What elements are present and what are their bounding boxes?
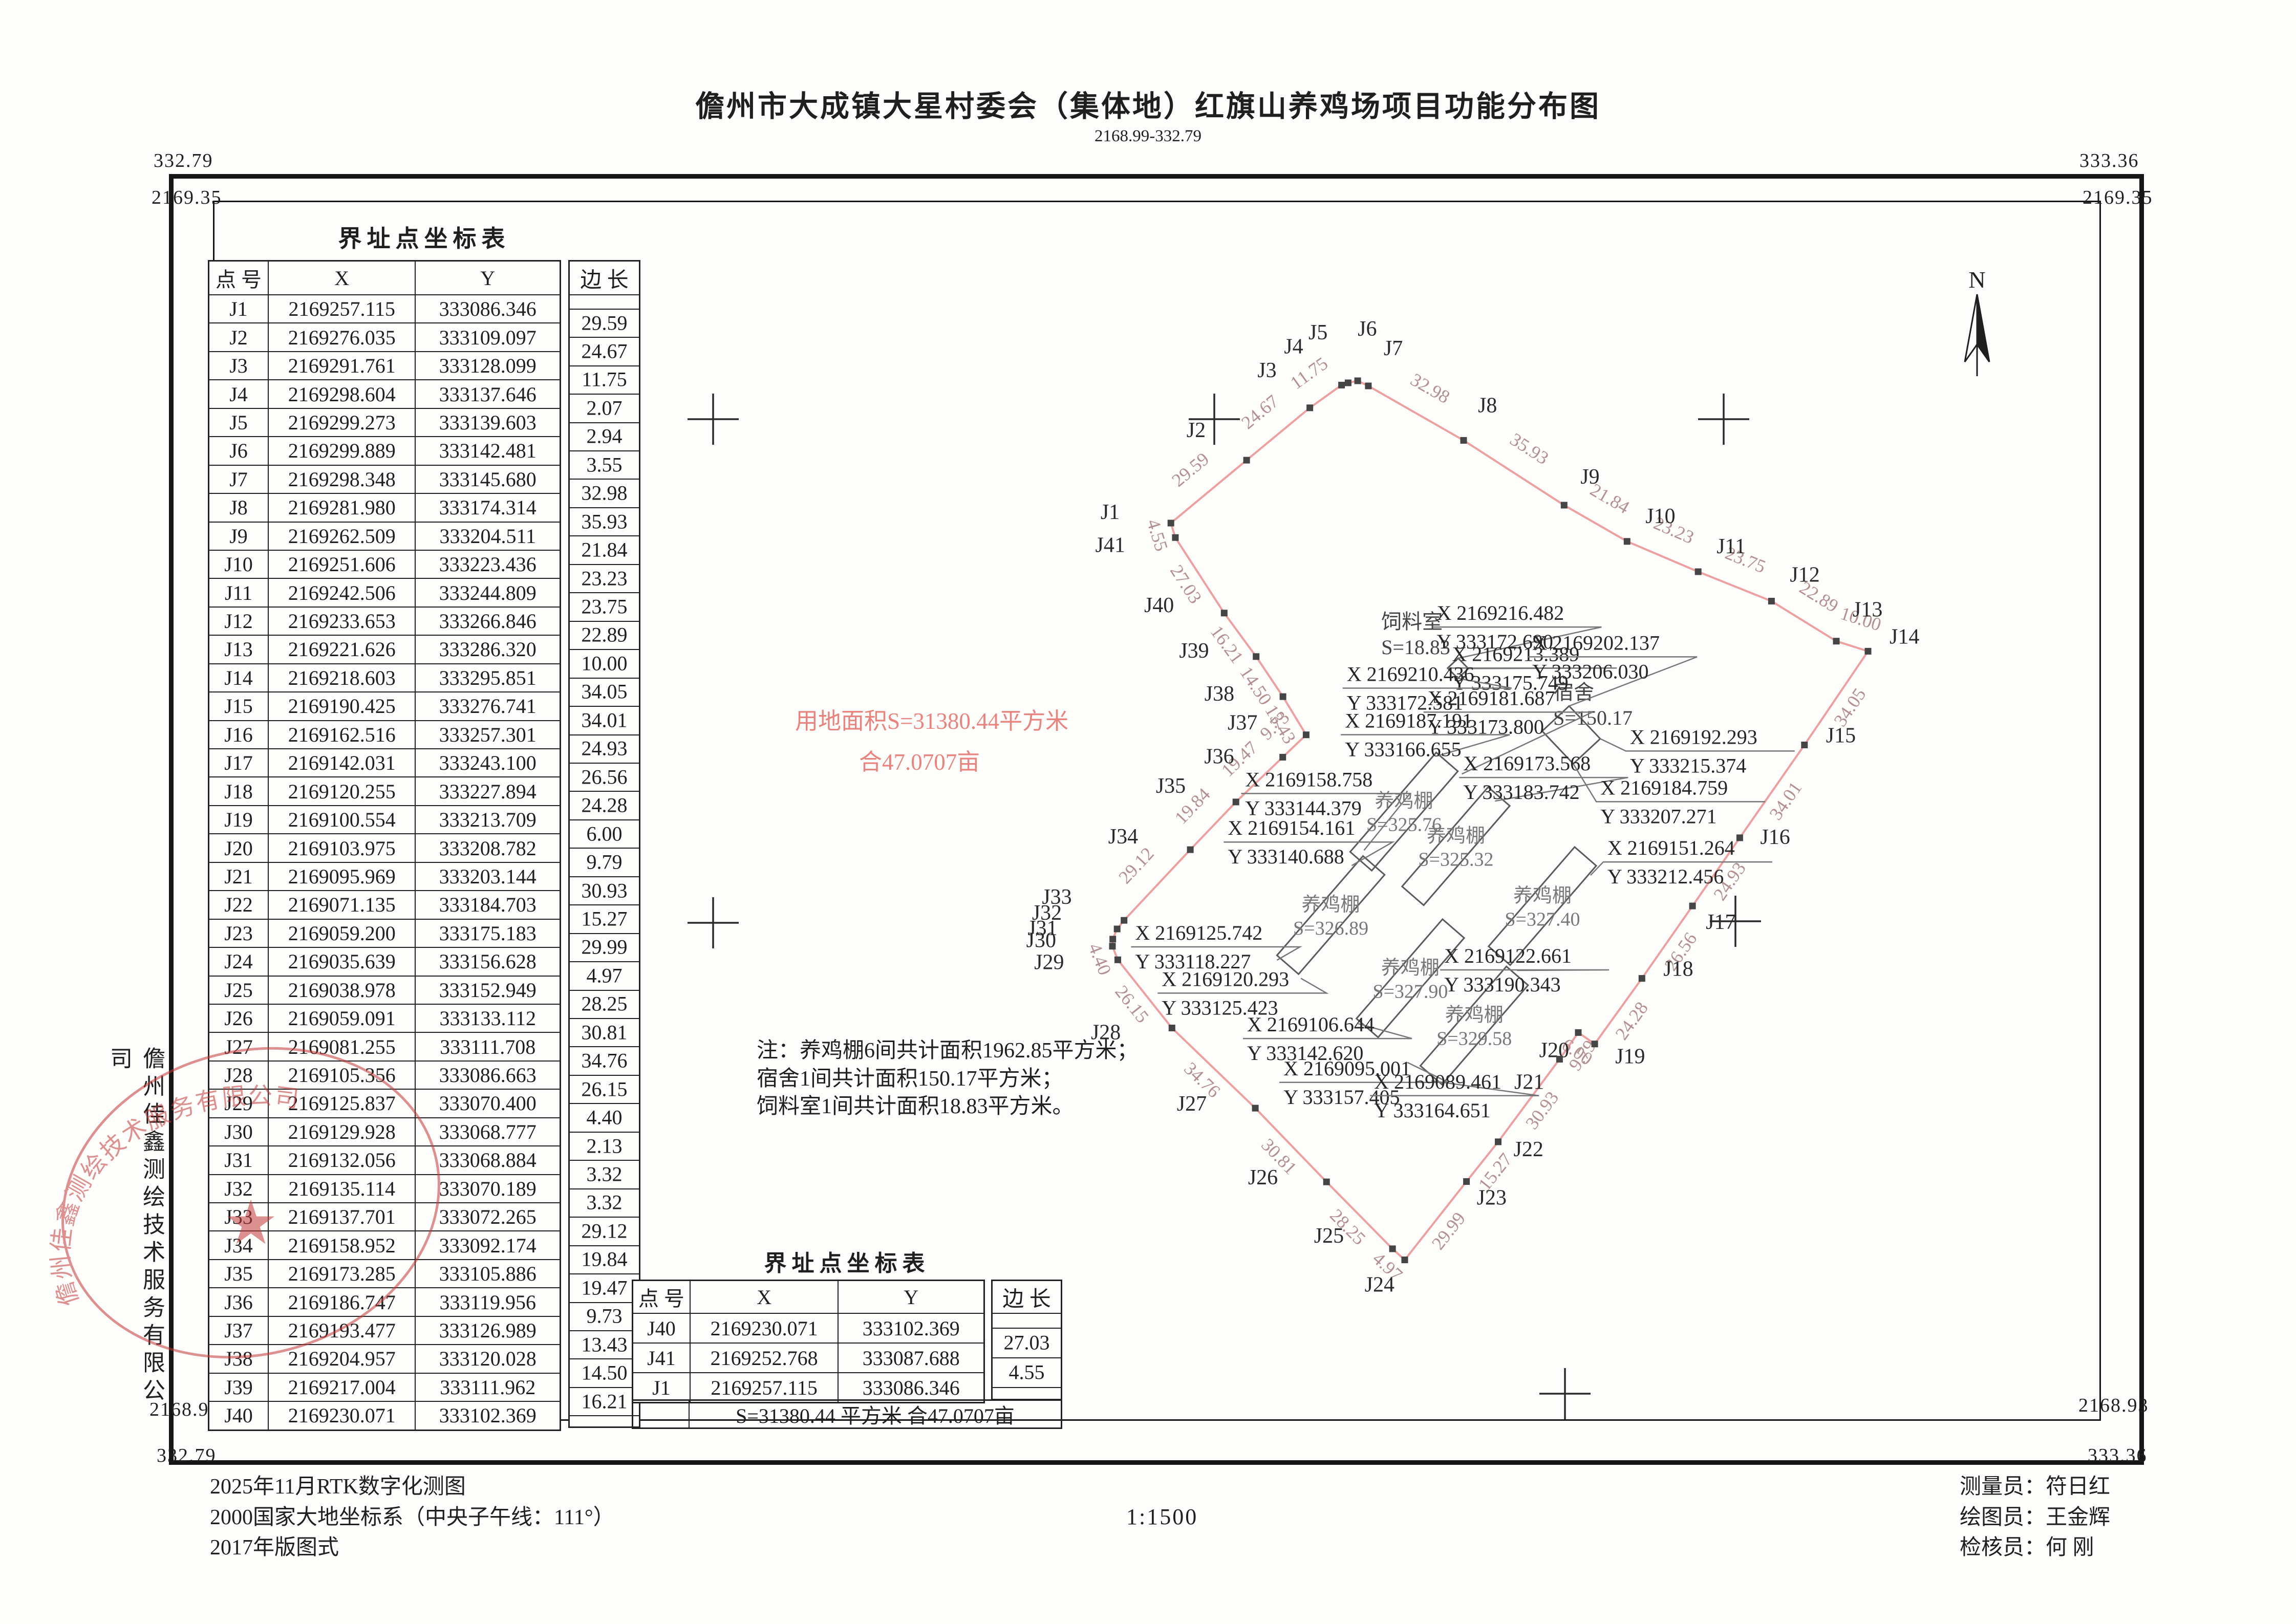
svg-text:X 2169173.568: X 2169173.568 [1463,752,1591,775]
cell-point-id: J4 [209,380,268,407]
svg-text:Y 333140.688: Y 333140.688 [1228,845,1344,868]
cell-y: 333070.400 [415,1090,560,1117]
svg-text:X 2169216.482: X 2169216.482 [1436,601,1564,624]
table-row: J262169059.091333133.112 [209,1004,560,1032]
cell-y: 333156.628 [415,948,560,975]
svg-text:X 2169120.293: X 2169120.293 [1162,967,1289,990]
boundary-vertex-J23 [1463,1178,1470,1185]
vertex-label-J15: J15 [1826,724,1856,748]
table-row: J72169298.348333145.680 [209,465,560,493]
edge-length-cell: 27.03 [993,1331,1061,1355]
vertex-label-J8: J8 [1478,394,1497,417]
edge-length-cell: 16.21 [570,1389,639,1413]
vertex-label-J1: J1 [1101,501,1120,524]
cell-y: 333086.663 [415,1062,560,1089]
main-table-lengths: 边 长29.5924.6711.752.072.943.5532.9835.93… [568,260,640,1428]
cell-x: 2169190.425 [268,692,415,720]
vertex-label-J2: J2 [1187,419,1206,442]
cell-x: 2169257.115 [690,1373,838,1402]
main-table-points: 点 号XYJ12169257.115333086.346J22169276.03… [208,260,561,1431]
svg-text:X 2169089.461: X 2169089.461 [1374,1070,1501,1093]
boundary-vertex-J3 [1306,404,1313,411]
vertex-label-J24: J24 [1365,1273,1394,1297]
boundary-vertex-J14 [1865,648,1872,655]
cell-y: 333295.851 [415,664,560,691]
boundary-vertex-J8 [1461,437,1467,444]
boundary-vertex-J13 [1833,638,1840,644]
table-row: J232169059.200333175.183 [209,919,560,947]
cell-x: 2169059.091 [268,1005,415,1032]
svg-text:Y 333206.030: Y 333206.030 [1532,660,1648,683]
boundary-vertex-J10 [1624,538,1630,545]
vertex-label-J9: J9 [1580,465,1599,489]
cell-point-id: J2 [209,323,268,351]
boundary-vertex-J31 [1109,936,1116,942]
table-row: J252169038.978333152.949 [209,976,560,1004]
cell-point-id: J6 [209,437,268,464]
cell-y: 333086.346 [838,1373,983,1402]
edge-length-cell: 30.81 [570,1020,639,1044]
boundary-vertex-J28 [1169,1025,1175,1031]
cell-point-id: J27 [209,1033,268,1060]
small-table-points: 点 号XYJ402169230.071333102.369J412169252.… [632,1280,985,1403]
svg-text:Y 333166.655: Y 333166.655 [1345,738,1461,761]
edge-length-cell: 24.67 [570,339,639,363]
coordinate-annotation: X 2169192.293 Y 333215.374 [1600,725,1795,777]
edge-length-cell: 6.00 [570,821,639,846]
cell-point-id: J28 [209,1062,268,1089]
edge-length-cell: 26.15 [570,1077,639,1101]
vertex-label-J19: J19 [1615,1045,1645,1069]
vertex-label-J5: J5 [1308,321,1327,344]
cell-y: 333119.956 [415,1288,560,1315]
vertex-label-J27: J27 [1177,1092,1207,1116]
building-area-label: S=326.89 [1293,918,1368,939]
header-cell: 点 号 [209,262,268,294]
table-row: J12169257.115333086.346 [209,294,560,322]
table-row: J132169221.626333286.320 [209,635,560,663]
boundary-vertex-J35 [1233,798,1239,805]
cell-point-id: J11 [209,579,268,606]
cell-x: 2169105.356 [268,1062,415,1089]
edge-length-cell: 2.94 [570,424,639,448]
cell-point-id: J38 [209,1345,268,1372]
total-area-cell: S=31380.44 平方米 合47.0707亩 [690,1401,1061,1427]
boundary-vertex-J37 [1303,731,1310,738]
coordinate-annotation: X 2169151.264 Y 333212.456 [1591,836,1772,888]
cell-point-id: J10 [209,551,268,578]
cell-y: 333109.097 [415,323,560,351]
table-row: J392169217.004333111.962 [209,1373,560,1401]
cell-point-id: J17 [209,749,268,776]
svg-text:X 2169192.293: X 2169192.293 [1630,725,1757,748]
table-row: J282169105.356333086.663 [209,1060,560,1089]
boundary-vertex-J27 [1252,1105,1259,1112]
boundary-vertex-J9 [1561,502,1568,509]
cell-point-id: J19 [209,806,268,833]
table-row: J222169071.135333184.703 [209,890,560,918]
vertex-label-J29: J29 [1034,950,1064,974]
building-area-label: S=327.90 [1372,981,1448,1002]
cell-x: 2169158.952 [268,1231,415,1259]
svg-text:X 2169151.264: X 2169151.264 [1607,836,1735,859]
edge-length-cell: 29.12 [570,1219,639,1243]
coordinate-annotation: X 2169122.661 Y 333190.343 [1440,944,1609,996]
cell-y: 333068.884 [415,1146,560,1174]
boundary-vertex-J41 [1172,534,1178,541]
cell-y: 333126.989 [415,1317,560,1344]
cell-point-id: J40 [209,1402,268,1429]
boundary-vertex-J12 [1768,598,1775,604]
building-label: 养鸡棚 [1445,1005,1504,1026]
table-row: J242169035.639333156.628 [209,947,560,975]
north-arrow: N [1965,267,1989,376]
cell-y: 333120.028 [415,1345,560,1372]
cell-point-id: J8 [209,494,268,521]
cell-x: 2169281.980 [268,494,415,521]
cell-y: 333184.703 [415,891,560,918]
cell-point-id: J39 [209,1374,268,1401]
table-row: J402169230.071333102.369 [209,1401,560,1429]
survey-map-page: 儋州市大成镇大星村委会（集体地）红旗山养鸡场项目功能分布图 2168.99-33… [0,0,2296,1624]
cell-y: 333111.708 [415,1033,560,1060]
boundary-vertex-J33 [1121,917,1127,924]
boundary-vertex-J6 [1355,378,1361,384]
cell-point-id: J25 [209,977,268,1004]
cell-y: 333213.709 [415,806,560,833]
svg-text:Y 333190.343: Y 333190.343 [1444,973,1560,996]
svg-text:X 2169210.436: X 2169210.436 [1347,662,1474,685]
cell-y: 333087.688 [838,1344,983,1372]
header-cell: Y [415,262,560,294]
table-row: J342169158.952333092.174 [209,1230,560,1259]
boundary-vertex-J11 [1695,569,1702,575]
svg-text:Y 333207.271: Y 333207.271 [1600,805,1716,828]
boundary-vertex-J40 [1221,610,1228,616]
cell-y: 333139.603 [415,409,560,436]
svg-text:Y 333183.742: Y 333183.742 [1463,781,1579,804]
edge-length-label: 24.28 [1611,998,1652,1044]
vertex-label-J7: J7 [1384,337,1403,360]
edge-length-label: 29.12 [1114,843,1158,887]
edge-length-cell: 24.28 [570,793,639,817]
header-cell: X [690,1281,838,1313]
cell-point-id: J1 [633,1373,690,1402]
svg-text:Y 333215.374: Y 333215.374 [1630,754,1746,777]
edge-length-cell: 35.93 [570,509,639,533]
cell-x: 2169252.768 [690,1344,838,1372]
cell-y: 333102.369 [415,1402,560,1429]
svg-text:Y 333173.800: Y 333173.800 [1428,715,1544,738]
svg-text:X 2169122.661: X 2169122.661 [1444,944,1572,967]
edge-length-cell: 34.76 [570,1049,639,1073]
edge-length-cell: 9.73 [570,1304,639,1328]
cell-y: 333070.189 [415,1175,560,1202]
cell-x: 2169193.477 [268,1317,415,1344]
edge-length-cell: 29.59 [570,311,639,335]
cell-x: 2169173.285 [268,1260,415,1287]
table-header-row: 点 号XY [633,1281,983,1313]
cell-y: 333208.782 [415,834,560,861]
boundary-vertex-J16 [1736,834,1743,841]
header-cell: Y [838,1281,983,1313]
edge-length-cell: 9.79 [570,850,639,874]
cell-x: 2169218.603 [268,664,415,691]
edge-length-label: 14.50 [1236,663,1276,709]
table-row: J382169204.957333120.028 [209,1344,560,1372]
coordinate-annotation: X 2169120.293 Y 333125.423 [1157,967,1326,1019]
edge-length-cell: 4.97 [570,963,639,987]
edge-length-cell: 4.40 [570,1106,639,1130]
boundary-vertex-J19 [1592,1041,1598,1047]
boundary-vertex-J24 [1402,1257,1408,1263]
cell-point-id: J14 [209,664,268,691]
cell-x: 2169221.626 [268,636,415,663]
edge-length-cell: 2.07 [570,396,639,420]
cell-y: 333223.436 [415,551,560,578]
table-row: J42169298.604333137.646 [209,379,560,407]
edge-length-cell: 13.43 [570,1332,639,1356]
cell-y: 333203.144 [415,863,560,890]
table-row: J212169095.969333203.144 [209,862,560,890]
cell-x: 2169129.928 [268,1118,415,1145]
cell-x: 2169071.135 [268,891,415,918]
vertex-label-J14: J14 [1890,625,1919,648]
building-area-label: S=150.17 [1553,706,1633,729]
cell-x: 2169299.889 [268,437,415,464]
grid-cross [688,897,739,948]
edge-length-cell: 3.32 [570,1162,639,1186]
edge-length-label: 34.05 [1830,684,1870,730]
boundary-vertex-J7 [1365,383,1371,389]
table-row: J192169100.554333213.709 [209,805,560,833]
table-row: J122169233.653333266.846 [209,607,560,635]
cell-point-id: J34 [209,1231,268,1259]
vertex-label-J35: J35 [1156,774,1186,798]
boundary-vertex-J17 [1689,903,1696,910]
vertex-label-J28: J28 [1091,1021,1121,1045]
cell-y: 333105.886 [415,1260,560,1287]
vertex-label-J10: J10 [1645,505,1675,528]
building-area-label: S=329.58 [1436,1028,1512,1050]
edge-length-label: 26.15 [1111,982,1153,1027]
boundary-vertex-J21 [1556,1056,1563,1063]
table-row: J322169135.114333070.189 [209,1174,560,1202]
cell-y: 333137.646 [415,380,560,407]
edge-length-cell: 11.75 [570,367,639,392]
edge-length-label: 24.67 [1237,391,1282,433]
cell-point-id: J20 [209,834,268,861]
cell-x: 2169125.837 [268,1090,415,1117]
edge-length-cell: 3.55 [570,452,639,477]
cell-point-id: J24 [209,948,268,975]
vertex-label-J4: J4 [1284,335,1303,358]
vertex-label-J25: J25 [1314,1224,1344,1248]
edge-length-cell: 4.55 [993,1360,1061,1384]
boundary-vertex-J15 [1801,742,1808,748]
cell-y: 333266.846 [415,608,560,635]
cell-point-id: J9 [209,523,268,550]
building-label: 养鸡棚 [1381,957,1440,979]
building-label: 养鸡棚 [1302,894,1360,916]
table-row: J112169242.506333244.809 [209,578,560,606]
grid-cross [688,394,739,445]
boundary-vertex-J22 [1495,1138,1501,1145]
small-table-footer-empty-cell [633,1401,690,1427]
edge-length-cell: 10.00 [570,651,639,675]
svg-text:X 2169184.759: X 2169184.759 [1600,776,1728,799]
cell-point-id: J41 [633,1344,690,1372]
edge-length-label: 16.21 [1207,622,1248,667]
cell-y: 333174.314 [415,494,560,521]
vertex-label-J3: J3 [1257,359,1276,382]
edge-length-cell: 15.27 [570,906,639,930]
table-row: J162169162.516333257.301 [209,720,560,748]
svg-text:Y 333212.456: Y 333212.456 [1607,865,1724,888]
svg-text:X 2169158.758: X 2169158.758 [1245,768,1372,791]
cell-point-id: J21 [209,863,268,890]
cell-y: 333244.809 [415,579,560,606]
cell-x: 2169162.516 [268,721,415,748]
cell-point-id: J12 [209,608,268,635]
table-row: J372169193.477333126.989 [209,1316,560,1344]
cell-x: 2169204.957 [268,1345,415,1372]
boundary-vertex-J38 [1280,694,1286,700]
header-cell-length: 边 长 [570,262,639,295]
cell-x: 2169298.604 [268,380,415,407]
table-row: J412169252.768333087.688 [633,1342,983,1372]
vertex-label-J16: J16 [1760,826,1790,849]
cell-x: 2169038.978 [268,977,415,1004]
cell-x: 2169233.653 [268,608,415,635]
edge-length-cell: 23.23 [570,566,639,590]
boundary-vertex-J36 [1279,754,1286,761]
cell-point-id: J40 [633,1314,690,1342]
cell-x: 2169186.747 [268,1288,415,1315]
edge-length-cell: 21.84 [570,538,639,562]
vertex-label-J33: J33 [1042,885,1071,909]
cell-point-id: J7 [209,466,268,493]
edge-length-cell: 19.47 [570,1275,639,1300]
vertex-label-J39: J39 [1179,639,1209,663]
cell-y: 333145.680 [415,466,560,493]
cell-x: 2169035.639 [268,948,415,975]
vertex-label-J18: J18 [1663,958,1693,981]
vertex-label-J22: J22 [1514,1138,1543,1161]
boundary-vertex-J20 [1575,1029,1582,1036]
vertex-label-J37: J37 [1228,711,1257,735]
cell-x: 2169291.761 [268,352,415,379]
edge-length-cell: 32.98 [570,481,639,505]
cell-y: 333286.320 [415,636,560,663]
cell-x: 2169251.606 [268,551,415,578]
svg-text:X 2169106.644: X 2169106.644 [1247,1013,1375,1036]
svg-text:X 2169154.161: X 2169154.161 [1228,816,1355,839]
table-row: J292169125.837333070.400 [209,1089,560,1117]
cell-y: 333276.741 [415,692,560,720]
cell-y: 333257.301 [415,721,560,748]
cell-y: 333152.949 [415,977,560,1004]
cell-point-id: J30 [209,1118,268,1145]
vertex-label-J6: J6 [1358,317,1377,341]
cell-x: 2169120.255 [268,777,415,805]
edge-length-cell: 26.56 [570,765,639,789]
boundary-vertex-J4 [1338,382,1345,388]
cell-point-id: J1 [209,295,268,322]
table-row: J102169251.606333223.436 [209,550,560,578]
svg-text:X 2169202.137: X 2169202.137 [1532,631,1660,654]
table-row: J332169137.701333072.265 [209,1202,560,1230]
cell-point-id: J3 [209,352,268,379]
cell-y: 333128.099 [415,352,560,379]
svg-text:Y 333164.651: Y 333164.651 [1374,1099,1490,1122]
boundary-vertex-J26 [1323,1179,1330,1185]
vertex-label-J36: J36 [1204,745,1234,768]
cell-x: 2169135.114 [268,1175,415,1202]
vertex-label-J26: J26 [1248,1166,1278,1189]
vertex-label-J12: J12 [1790,564,1819,587]
cell-y: 333243.100 [415,749,560,776]
vertex-label-J38: J38 [1205,682,1234,706]
cell-x: 2169142.031 [268,749,415,776]
cell-x: 2169059.200 [268,920,415,947]
boundary-polygon [1112,381,1868,1260]
vertex-label-J13: J13 [1853,598,1882,622]
boundary-vertex-J1 [1168,520,1174,527]
table-row: J402169230.071333102.369 [633,1313,983,1342]
cell-x: 2169137.701 [268,1203,415,1230]
table-row: J32169291.761333128.099 [209,351,560,379]
table-row: J172169142.031333243.100 [209,748,560,776]
table-row: J52169299.273333139.603 [209,408,560,436]
svg-text:N: N [1968,267,1985,293]
edge-length-label: 32.98 [1407,369,1453,407]
cell-point-id: J23 [209,920,268,947]
vertex-label-J17: J17 [1706,911,1735,934]
vertex-label-J40: J40 [1144,594,1174,617]
svg-text:X 2169125.742: X 2169125.742 [1135,921,1262,944]
table-row: J272169081.255333111.708 [209,1032,560,1060]
table-row: J142169218.603333295.851 [209,663,560,691]
building-label: 饲料室 [1381,610,1443,633]
cell-y: 333102.369 [838,1314,983,1342]
boundary-vertex-J39 [1253,653,1259,660]
edge-length-cell: 19.84 [570,1247,639,1271]
boundary-vertex-J25 [1389,1245,1396,1252]
edge-length-label: 34.01 [1765,778,1806,824]
edge-length-label: 29.59 [1168,448,1213,491]
cell-x: 2169230.071 [268,1402,415,1429]
building-label: 养鸡棚 [1513,885,1572,906]
edge-length-cell: 28.25 [570,992,639,1016]
cell-x: 2169217.004 [268,1374,415,1401]
cell-point-id: J15 [209,692,268,720]
cell-x: 2169132.056 [268,1146,415,1174]
small-table-lengths: 边 长27.034.55 [991,1280,1062,1400]
coordinate-annotation: X 2169125.742 Y 333118.227 [1131,921,1300,973]
cell-x: 2169299.273 [268,409,415,436]
vertex-label-J11: J11 [1716,535,1746,558]
cell-point-id: J18 [209,777,268,805]
cell-point-id: J29 [209,1090,268,1117]
grid-cross [1698,394,1749,445]
cell-y: 333204.511 [415,523,560,550]
cell-x: 2169103.975 [268,834,415,861]
cell-point-id: J22 [209,891,268,918]
header-cell: 点 号 [633,1281,690,1313]
table-row: J152169190.425333276.741 [209,691,560,720]
cell-y: 333072.265 [415,1203,560,1230]
